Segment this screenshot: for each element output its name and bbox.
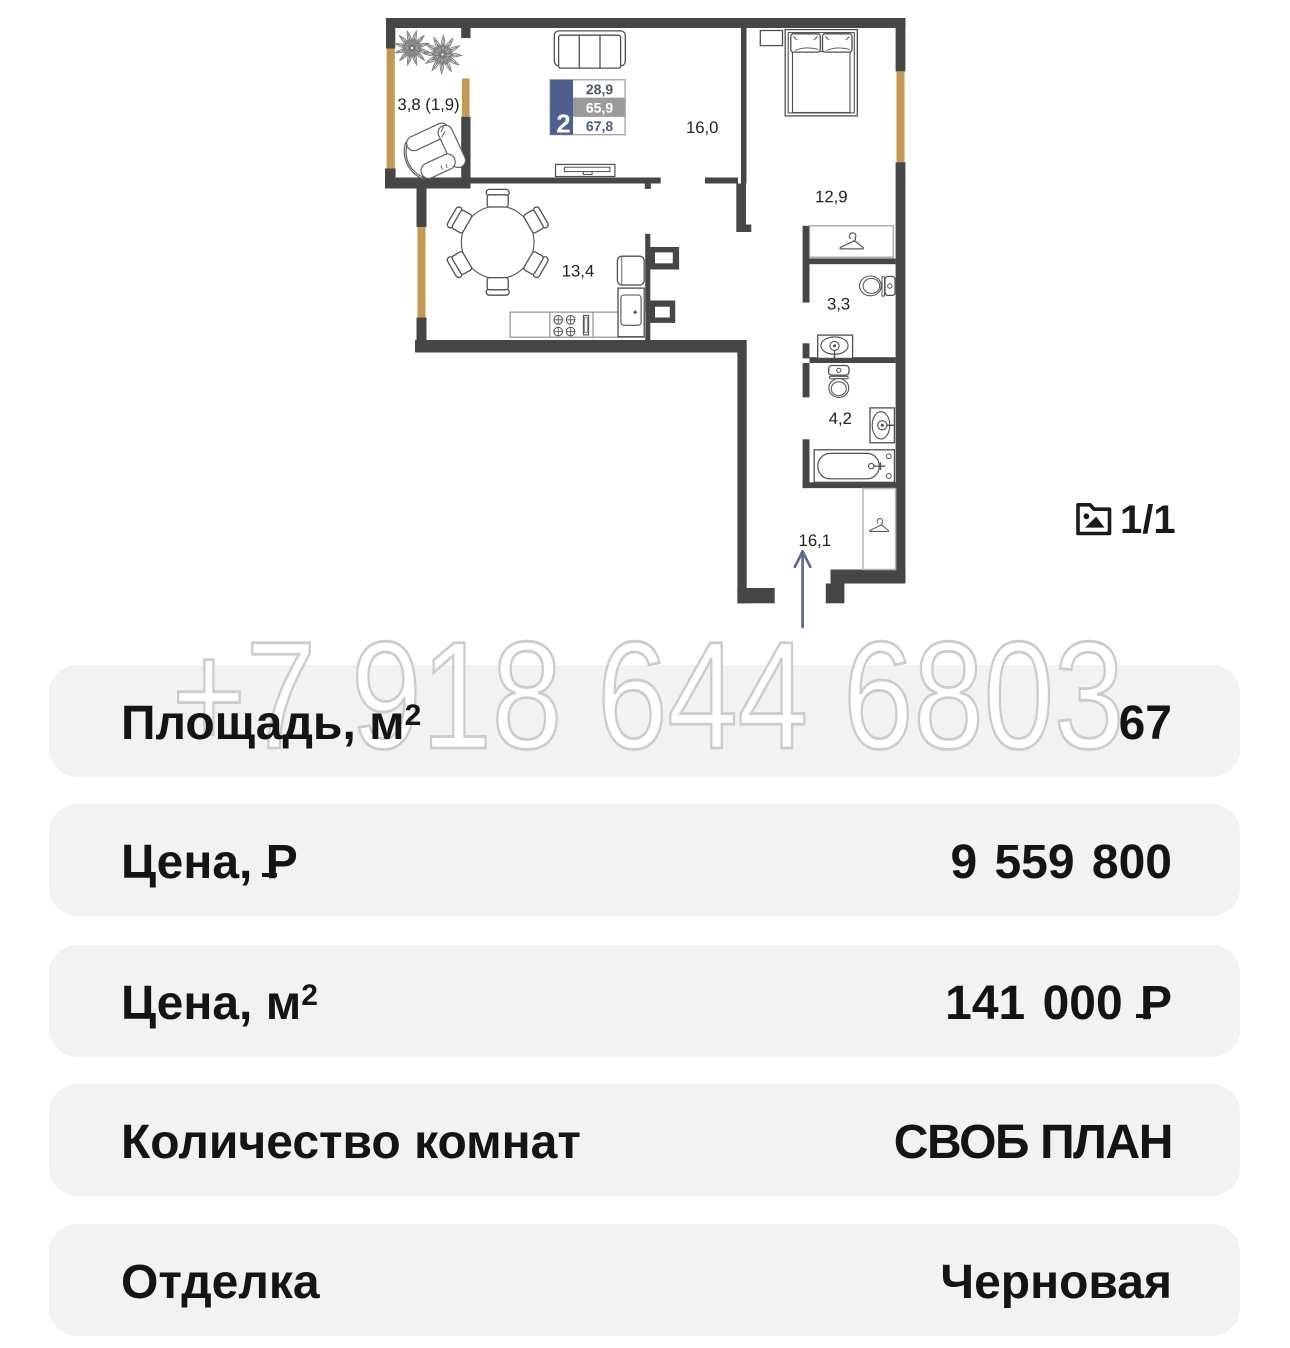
svg-text:67,8: 67,8 (586, 118, 613, 134)
svg-text:4,2: 4,2 (829, 409, 852, 428)
svg-text:3,8 (1,9): 3,8 (1,9) (397, 95, 459, 114)
svg-text:13,4: 13,4 (562, 261, 595, 280)
svg-text:65,9: 65,9 (586, 100, 613, 116)
svg-text:16,0: 16,0 (686, 118, 719, 137)
svg-text:3,3: 3,3 (827, 294, 850, 313)
svg-text:28,9: 28,9 (586, 81, 613, 97)
svg-text:12,9: 12,9 (815, 187, 848, 206)
svg-text:16,1: 16,1 (799, 531, 832, 550)
svg-text:2: 2 (556, 108, 571, 138)
